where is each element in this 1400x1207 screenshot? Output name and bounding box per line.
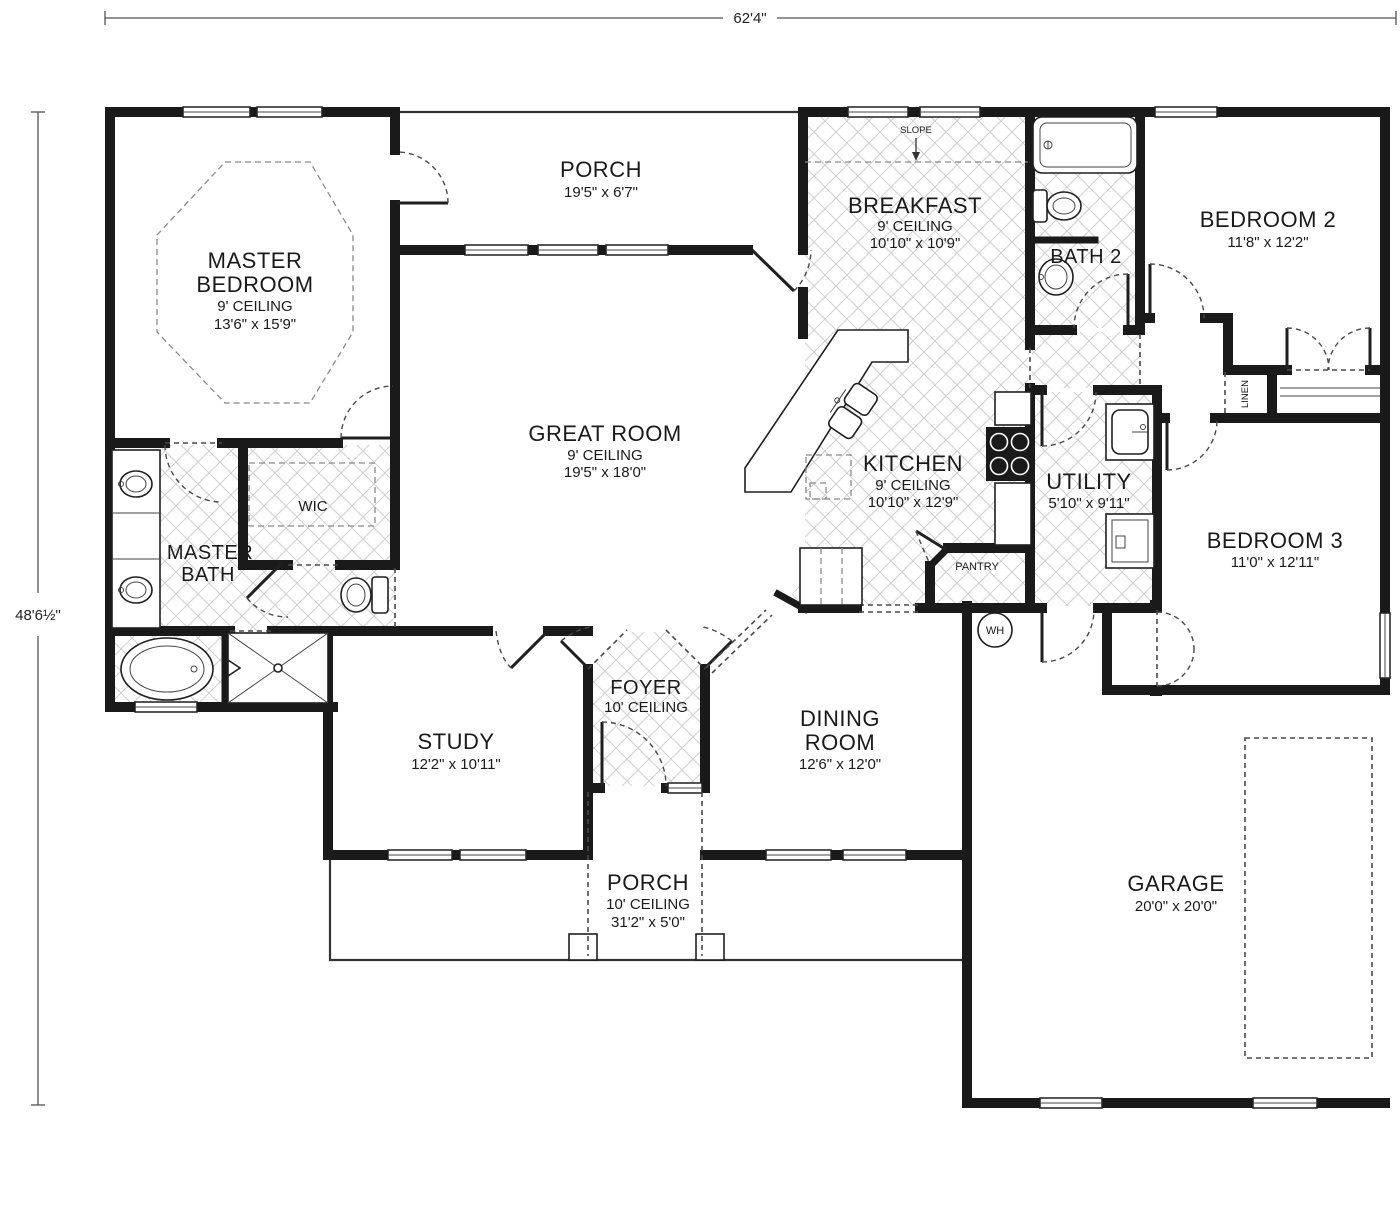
utility-sink bbox=[1106, 404, 1154, 460]
room-label-bath2: BATH 2 bbox=[1050, 246, 1122, 268]
window bbox=[1155, 107, 1217, 117]
room-size-garage: 20'0" x 20'0" bbox=[1135, 898, 1217, 915]
floor-plan-page: 62'4" 48'6½" MASTER BEDROOM 9' CEILING 1… bbox=[0, 0, 1400, 1207]
window bbox=[135, 702, 197, 712]
kitchen-cabinet-lower bbox=[800, 548, 862, 605]
window bbox=[465, 245, 528, 255]
door-master-to-porch bbox=[397, 152, 448, 203]
master-tub bbox=[121, 638, 213, 700]
room-size-bedroom3: 11'0" x 12'11" bbox=[1231, 554, 1319, 571]
doors-bedroom2-closet-french bbox=[1287, 328, 1370, 370]
porch-columns bbox=[569, 934, 724, 960]
room-ceiling-great-room: 9' CEILING bbox=[567, 447, 642, 464]
bath2-tub bbox=[1033, 117, 1137, 173]
window bbox=[920, 107, 980, 117]
floor-plan: 62'4" 48'6½" MASTER BEDROOM 9' CEILING 1… bbox=[0, 0, 1400, 1207]
door-master-bedroom bbox=[341, 386, 393, 438]
room-label-foyer: FOYER bbox=[610, 677, 681, 699]
label-water-heater: WH bbox=[986, 625, 1004, 637]
room-label-breakfast: BREAKFAST bbox=[848, 193, 982, 218]
master-toilet bbox=[341, 577, 388, 613]
dining-angled-opening bbox=[706, 610, 772, 673]
room-label-master-bath-2: BATH bbox=[181, 564, 235, 586]
room-ceiling-foyer: 10' CEILING bbox=[604, 699, 688, 716]
room-label-linen: LINEN bbox=[1240, 380, 1251, 408]
room-label-bedroom2: BEDROOM 2 bbox=[1200, 207, 1337, 232]
room-label-rear-por​ch: PORCH bbox=[560, 157, 642, 182]
door-bedroom2 bbox=[1150, 264, 1204, 318]
window bbox=[460, 850, 526, 860]
washer bbox=[1106, 514, 1154, 568]
window bbox=[1380, 613, 1390, 678]
window bbox=[183, 107, 250, 117]
window bbox=[843, 850, 906, 860]
closet-shelf-bedroom2 bbox=[1280, 388, 1380, 396]
room-ceiling-breakfast: 9' CEILING bbox=[877, 218, 952, 235]
door-study bbox=[496, 631, 548, 668]
room-label-pantry: PANTRY bbox=[955, 561, 999, 573]
room-size-kitchen: 10'10" x 12'9" bbox=[868, 494, 959, 511]
window bbox=[606, 245, 668, 255]
room-ceiling-front-porch: 10' CEILING bbox=[606, 896, 690, 913]
room-size-master-bedroom: 13'6" x 15'9" bbox=[214, 316, 296, 333]
label-slope: SLOPE bbox=[900, 125, 932, 136]
room-label-dining: DINING bbox=[800, 706, 880, 731]
room-size-study: 12'2" x 10'11" bbox=[411, 756, 501, 773]
master-bath-vanity bbox=[112, 450, 160, 628]
window bbox=[257, 107, 322, 117]
room-label-kitchen: KITCHEN bbox=[863, 451, 963, 476]
room-size-utility: 5'10" x 9'11" bbox=[1048, 495, 1129, 512]
window bbox=[1253, 1098, 1317, 1108]
master-shower bbox=[228, 633, 328, 703]
room-label-garage: GARAGE bbox=[1127, 871, 1224, 896]
door-porch-to-breakfast bbox=[752, 250, 811, 291]
room-label-master-bedroom: MASTER bbox=[208, 248, 303, 273]
window bbox=[538, 245, 598, 255]
room-label-master-bath: MASTER bbox=[167, 542, 253, 564]
room-size-bedroom2: 11'8" x 12'2" bbox=[1227, 234, 1308, 251]
room-size-breakfast: 10'10" x 10'9" bbox=[870, 235, 961, 252]
room-label-master-bedroom-2: BEDROOM bbox=[196, 272, 313, 297]
room-ceiling-master-bedroom: 9' CEILING bbox=[217, 298, 292, 315]
bath2-toilet bbox=[1033, 190, 1081, 222]
room-size-great-room: 19'5" x 18'0" bbox=[564, 464, 646, 481]
room-label-great-room: GREAT ROOM bbox=[528, 421, 681, 446]
room-ceiling-kitchen: 9' CEILING bbox=[875, 477, 950, 494]
window bbox=[848, 107, 908, 117]
overall-height-dimension: 48'6½" bbox=[15, 607, 61, 624]
room-label-front-porch: PORCH bbox=[607, 870, 689, 895]
room-label-dining-2: ROOM bbox=[805, 730, 875, 755]
room-label-bedroom3: BEDROOM 3 bbox=[1207, 528, 1344, 553]
door-bedroom3 bbox=[1167, 420, 1217, 470]
room-label-wic: WIC bbox=[298, 498, 327, 515]
window bbox=[1040, 1098, 1102, 1108]
room-size-front-porch: 31'2" x 5'0" bbox=[611, 914, 685, 931]
room-size-dining: 12'6" x 12'0" bbox=[799, 756, 881, 773]
room-label-utility: UTILITY bbox=[1046, 469, 1131, 494]
room-label-study: STUDY bbox=[417, 729, 494, 754]
window bbox=[668, 783, 702, 793]
window bbox=[388, 850, 452, 860]
room-size-rear-porch: 19'5" x 6'7" bbox=[564, 184, 638, 201]
doors-bedroom3-closet-bifold bbox=[1150, 600, 1194, 696]
window bbox=[766, 850, 831, 860]
overall-width-dimension: 62'4" bbox=[733, 10, 766, 27]
garage-storage-area bbox=[1245, 738, 1372, 1058]
door-garage-entry bbox=[1042, 610, 1094, 662]
